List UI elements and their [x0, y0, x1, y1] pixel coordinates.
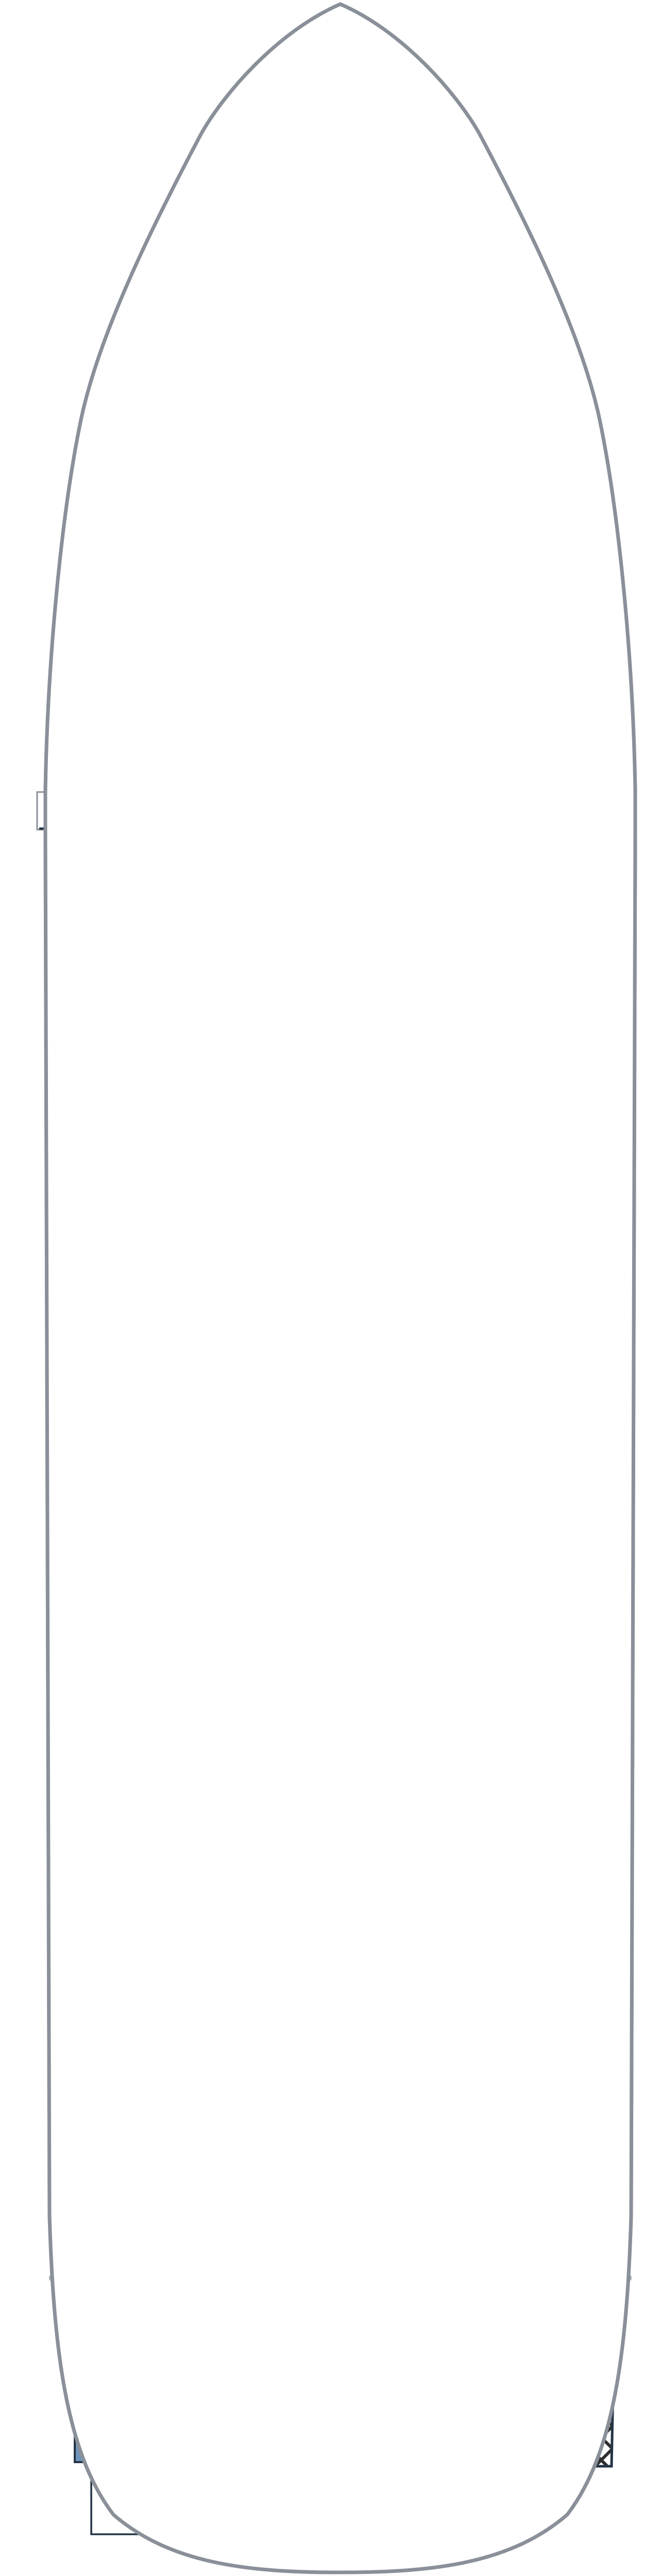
galley-cabinet-c-tab [74, 1127, 145, 1143]
cockpit-marker-dot [207, 490, 234, 517]
center-cabinet [290, 859, 399, 975]
cupholder [187, 1820, 210, 1843]
divan [89, 1808, 271, 2291]
seat-1-right [408, 1272, 579, 1486]
galley-cabinet-a [72, 839, 258, 901]
cupholder [223, 2253, 246, 2277]
forward-baggage-hatch [416, 882, 608, 1251]
cupholder [223, 1820, 246, 1843]
floorplan-stage [0, 0, 660, 2576]
seat-2-left [107, 1586, 278, 1800]
seat-3-right [410, 1959, 582, 2173]
forward-baggage-area [406, 831, 608, 1281]
aft-baggage-hatch [431, 2183, 617, 2466]
seat-2-right [408, 1586, 579, 1800]
floorplan-drawing [0, 0, 660, 2576]
cockpit-bulkhead [37, 792, 633, 830]
forward-right-cabinet [406, 831, 608, 880]
seat-1-left [107, 1272, 278, 1486]
galley-cabinet-b [72, 906, 237, 1114]
galley-cabinet-c [72, 1125, 271, 1264]
sink [217, 2473, 289, 2525]
cupholder [187, 2253, 210, 2277]
